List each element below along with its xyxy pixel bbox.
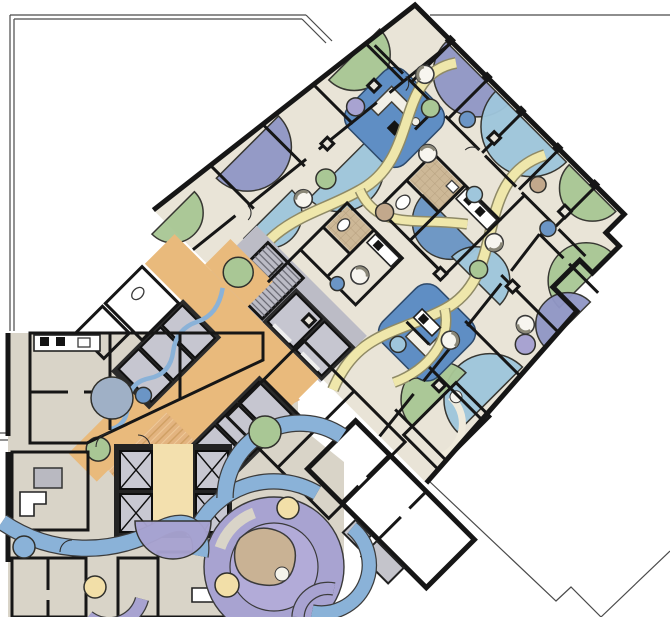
circle-rug <box>277 497 299 519</box>
chair-icon <box>419 144 437 162</box>
circle-rug <box>91 377 133 419</box>
floor-plan <box>0 0 670 617</box>
floor-plan-canvas <box>0 0 670 617</box>
sink-icon <box>78 338 90 347</box>
freight-elevator-cab <box>120 451 152 489</box>
circle-rug <box>215 573 239 597</box>
circle-rug <box>84 576 106 598</box>
service-lobby <box>153 444 193 524</box>
circle-rug <box>13 536 35 558</box>
toilet-icon <box>129 285 146 302</box>
circle-rug <box>249 416 281 448</box>
